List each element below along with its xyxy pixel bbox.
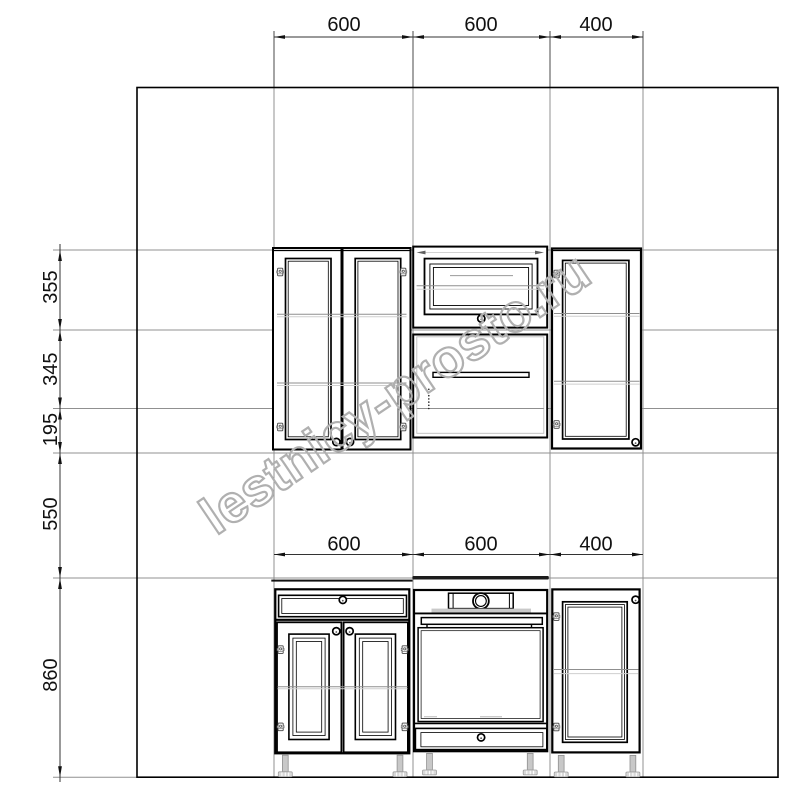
svg-text:600: 600 [327, 14, 360, 36]
svg-text:345: 345 [40, 353, 62, 386]
svg-text:600: 600 [464, 534, 497, 556]
svg-text:550: 550 [40, 497, 62, 530]
svg-text:600: 600 [327, 534, 360, 556]
svg-text:195: 195 [40, 413, 62, 446]
svg-text:600: 600 [464, 14, 497, 36]
svg-text:400: 400 [579, 534, 612, 556]
svg-text:860: 860 [40, 658, 62, 691]
svg-text:355: 355 [40, 270, 62, 303]
svg-text:400: 400 [579, 14, 612, 36]
